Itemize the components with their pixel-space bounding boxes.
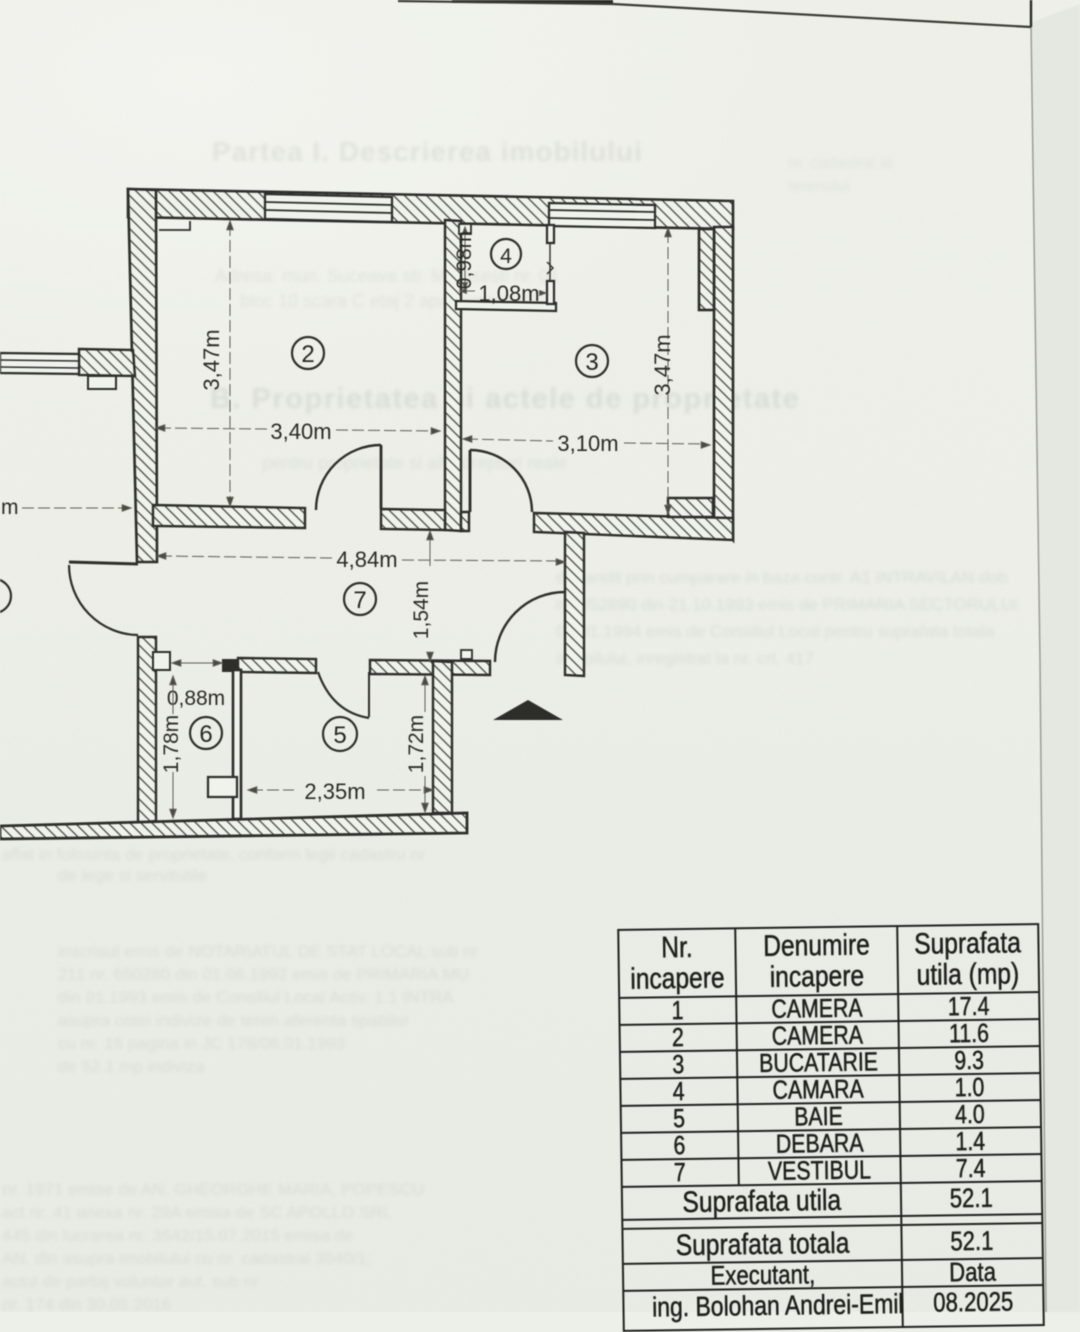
svg-text:4: 4 xyxy=(500,245,512,268)
svg-text:6: 6 xyxy=(199,721,212,748)
svg-text:1,78m: 1,78m xyxy=(160,715,183,773)
svg-text:3: 3 xyxy=(585,349,598,376)
svg-text:3,47m: 3,47m xyxy=(199,329,224,390)
svg-text:0,88m: 0,88m xyxy=(167,687,225,710)
svg-text:m: m xyxy=(1,496,19,519)
svg-text:3,47m: 3,47m xyxy=(650,334,675,395)
svg-text:1,54m: 1,54m xyxy=(410,581,433,639)
svg-text:5: 5 xyxy=(333,722,346,749)
svg-text:3,10m: 3,10m xyxy=(557,431,618,456)
svg-text:4,84m: 4,84m xyxy=(336,547,397,572)
svg-text:7: 7 xyxy=(353,587,366,614)
svg-text:0,98m: 0,98m xyxy=(453,231,476,289)
svg-text:3,40m: 3,40m xyxy=(270,419,331,444)
svg-text:1,72m: 1,72m xyxy=(405,715,428,773)
svg-text:2,35m: 2,35m xyxy=(304,779,365,804)
svg-text:1,08m: 1,08m xyxy=(478,281,539,306)
svg-text:2: 2 xyxy=(301,341,314,368)
